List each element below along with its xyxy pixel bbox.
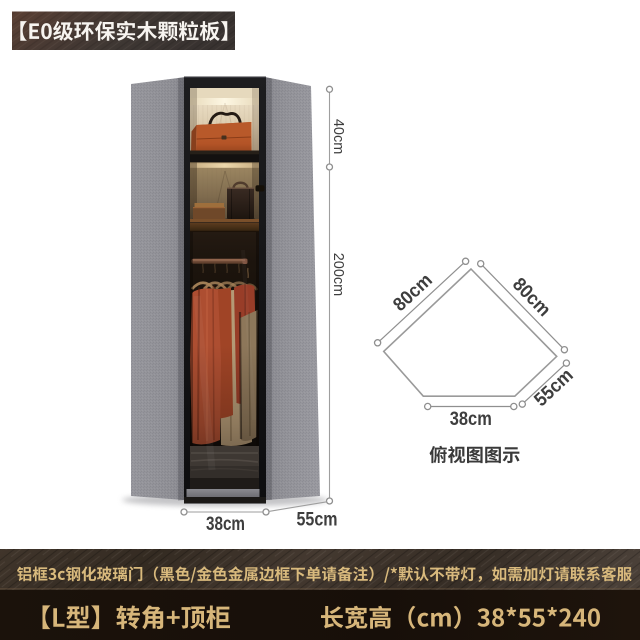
svg-text:38cm: 38cm (450, 409, 492, 430)
svg-text:55cm: 55cm (297, 510, 338, 531)
svg-text:38cm: 38cm (206, 514, 245, 535)
svg-text:40cm: 40cm (330, 119, 346, 154)
svg-text:200cm: 200cm (330, 253, 346, 297)
